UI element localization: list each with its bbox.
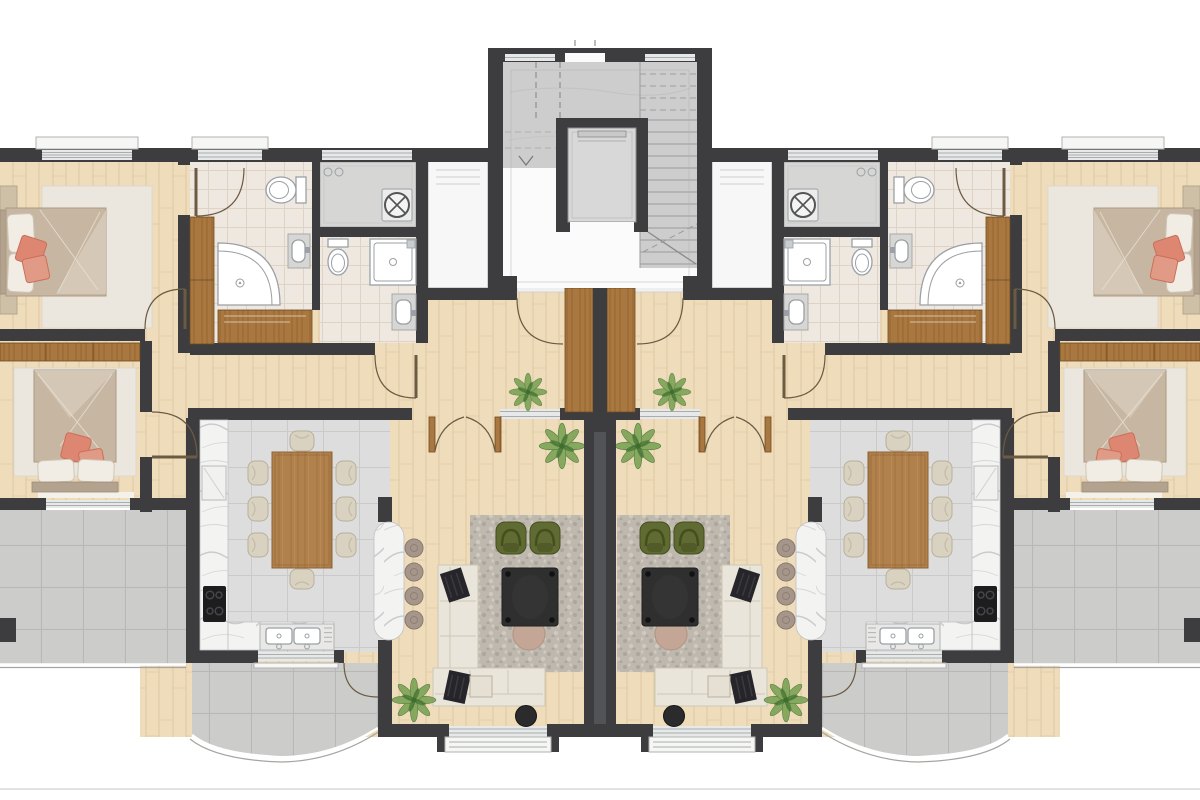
stair-core bbox=[488, 40, 712, 292]
elevator bbox=[556, 118, 648, 234]
floor-plan bbox=[0, 0, 1200, 800]
stair-flight bbox=[640, 62, 697, 268]
elevator-door bbox=[578, 131, 626, 137]
floor-plan-drawing bbox=[0, 0, 1200, 800]
